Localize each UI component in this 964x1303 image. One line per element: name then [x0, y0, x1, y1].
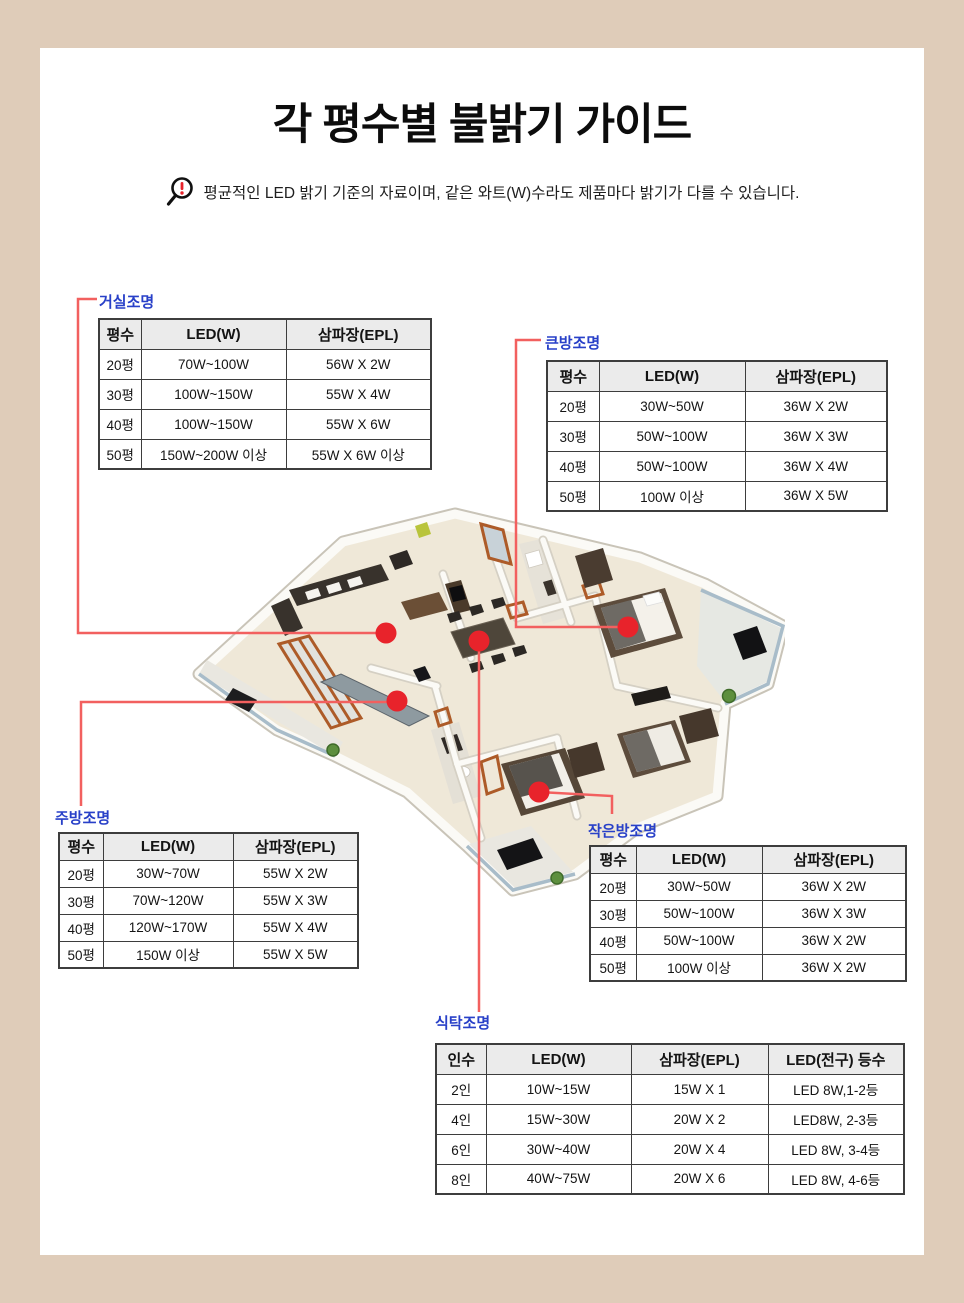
table-cell: 10W~15W — [486, 1074, 631, 1104]
table-cell: 30평 — [590, 900, 636, 927]
table-header-row: 평수LED(W)삼파장(EPL) — [590, 846, 906, 873]
table-cell: 30평 — [547, 421, 599, 451]
table-row: 40평50W~100W36W X 4W — [547, 451, 887, 481]
table-cell: 50W~100W — [636, 927, 762, 954]
table-row: 20평30W~50W36W X 2W — [590, 873, 906, 900]
column-header: 삼파장(EPL) — [745, 361, 887, 391]
table-cell: 55W X 6W — [286, 409, 431, 439]
table-cell: LED 8W, 4-6등 — [768, 1164, 904, 1194]
column-header: LED(전구) 등수 — [768, 1044, 904, 1074]
notice-line: 평균적인 LED 밝기 기준의 자료이며, 같은 와트(W)수라도 제품마다 밝… — [0, 176, 964, 208]
label-small-room-lighting: 작은방조명 — [588, 820, 657, 841]
table-row: 8인40W~75W20W X 6LED 8W, 4-6등 — [436, 1164, 904, 1194]
table-cell: LED 8W,1-2등 — [768, 1074, 904, 1104]
column-header: LED(W) — [599, 361, 745, 391]
table-cell: 2인 — [436, 1074, 486, 1104]
table-cell: 55W X 3W — [233, 887, 358, 914]
table-cell: 20평 — [547, 391, 599, 421]
table-cell: 50W~100W — [636, 900, 762, 927]
table-cell: 36W X 2W — [762, 954, 906, 981]
table-cell: 55W X 2W — [233, 860, 358, 887]
table-cell: 30평 — [59, 887, 103, 914]
column-header: LED(W) — [141, 319, 286, 349]
table-cell: 55W X 6W 이상 — [286, 439, 431, 469]
column-header: 삼파장(EPL) — [631, 1044, 768, 1074]
notice-text: 평균적인 LED 밝기 기준의 자료이며, 같은 와트(W)수라도 제품마다 밝… — [204, 181, 800, 203]
table-cell: 20W X 6 — [631, 1164, 768, 1194]
table-cell: 36W X 2W — [762, 927, 906, 954]
table-cell: 50W~100W — [599, 451, 745, 481]
column-header: LED(W) — [636, 846, 762, 873]
table-cell: 150W~200W 이상 — [141, 439, 286, 469]
table-row: 30평100W~150W55W X 4W — [99, 379, 431, 409]
table-row: 20평30W~50W36W X 2W — [547, 391, 887, 421]
table-row: 40평120W~170W55W X 4W — [59, 914, 358, 941]
table-row: 40평100W~150W55W X 6W — [99, 409, 431, 439]
table-cell: 55W X 4W — [233, 914, 358, 941]
table-cell: 36W X 2W — [762, 873, 906, 900]
table-cell: 40W~75W — [486, 1164, 631, 1194]
table-cell: 50평 — [547, 481, 599, 511]
small-room-table: 평수LED(W)삼파장(EPL)20평30W~50W36W X 2W30평50W… — [589, 845, 907, 982]
column-header: 평수 — [99, 319, 141, 349]
table-cell: 20평 — [99, 349, 141, 379]
column-header: 평수 — [590, 846, 636, 873]
table-cell: 6인 — [436, 1134, 486, 1164]
table-cell: LED8W, 2-3등 — [768, 1104, 904, 1134]
table-cell: 36W X 3W — [745, 421, 887, 451]
magnifier-exclamation-icon — [165, 176, 195, 208]
label-dining-lighting: 식탁조명 — [435, 1012, 490, 1033]
table-cell: 55W X 4W — [286, 379, 431, 409]
table-cell: 50평 — [590, 954, 636, 981]
table-row: 40평50W~100W36W X 2W — [590, 927, 906, 954]
table-cell: 30평 — [99, 379, 141, 409]
table-header-row: 평수LED(W)삼파장(EPL) — [547, 361, 887, 391]
table-row: 6인30W~40W20W X 4LED 8W, 3-4등 — [436, 1134, 904, 1164]
table-cell: 70W~120W — [103, 887, 233, 914]
table-cell: 40평 — [590, 927, 636, 954]
table-row: 30평70W~120W55W X 3W — [59, 887, 358, 914]
table-cell: 36W X 4W — [745, 451, 887, 481]
table-cell: 30W~70W — [103, 860, 233, 887]
table-cell: 100W 이상 — [636, 954, 762, 981]
label-living-room-lighting: 거실조명 — [99, 291, 154, 312]
table-cell: 30W~40W — [486, 1134, 631, 1164]
table-cell: 40평 — [99, 409, 141, 439]
kitchen-table: 평수LED(W)삼파장(EPL)20평30W~70W55W X 2W30평70W… — [58, 832, 359, 969]
table-cell: 20평 — [590, 873, 636, 900]
table-row: 2인10W~15W15W X 1LED 8W,1-2등 — [436, 1074, 904, 1104]
label-kitchen-lighting: 주방조명 — [55, 807, 110, 828]
table-cell: 20평 — [59, 860, 103, 887]
table-row: 50평150W 이상55W X 5W — [59, 941, 358, 968]
table-row: 4인15W~30W20W X 2LED8W, 2-3등 — [436, 1104, 904, 1134]
table-row: 50평100W 이상36W X 5W — [547, 481, 887, 511]
master-room-table: 평수LED(W)삼파장(EPL)20평30W~50W36W X 2W30평50W… — [546, 360, 888, 512]
table-header-row: 평수LED(W)삼파장(EPL) — [99, 319, 431, 349]
table-row: 30평50W~100W36W X 3W — [547, 421, 887, 451]
table-cell: 4인 — [436, 1104, 486, 1134]
table-cell: 30W~50W — [636, 873, 762, 900]
table-cell: 50평 — [99, 439, 141, 469]
table-cell: 56W X 2W — [286, 349, 431, 379]
table-row: 20평30W~70W55W X 2W — [59, 860, 358, 887]
table-cell: 120W~170W — [103, 914, 233, 941]
table-cell: 36W X 5W — [745, 481, 887, 511]
table-cell: 70W~100W — [141, 349, 286, 379]
table-cell: 150W 이상 — [103, 941, 233, 968]
column-header: LED(W) — [103, 833, 233, 860]
table-cell: 50평 — [59, 941, 103, 968]
table-cell: 36W X 3W — [762, 900, 906, 927]
table-cell: 15W~30W — [486, 1104, 631, 1134]
table-header-row: 인수LED(W)삼파장(EPL)LED(전구) 등수 — [436, 1044, 904, 1074]
table-row: 20평70W~100W56W X 2W — [99, 349, 431, 379]
table-cell: 100W 이상 — [599, 481, 745, 511]
table-header-row: 평수LED(W)삼파장(EPL) — [59, 833, 358, 860]
table-cell: 30W~50W — [599, 391, 745, 421]
table-row: 50평150W~200W 이상55W X 6W 이상 — [99, 439, 431, 469]
table-cell: 50W~100W — [599, 421, 745, 451]
table-cell: 15W X 1 — [631, 1074, 768, 1104]
table-row: 30평50W~100W36W X 3W — [590, 900, 906, 927]
column-header: 삼파장(EPL) — [762, 846, 906, 873]
table-cell: LED 8W, 3-4등 — [768, 1134, 904, 1164]
page-title: 각 평수별 불밝기 가이드 — [0, 90, 964, 152]
column-header: 삼파장(EPL) — [233, 833, 358, 860]
column-header: 평수 — [59, 833, 103, 860]
table-row: 50평100W 이상36W X 2W — [590, 954, 906, 981]
column-header: 평수 — [547, 361, 599, 391]
dining-table-table: 인수LED(W)삼파장(EPL)LED(전구) 등수2인10W~15W15W X… — [435, 1043, 905, 1195]
table-cell: 8인 — [436, 1164, 486, 1194]
column-header: LED(W) — [486, 1044, 631, 1074]
table-cell: 40평 — [547, 451, 599, 481]
table-cell: 55W X 5W — [233, 941, 358, 968]
living-room-table: 평수LED(W)삼파장(EPL)20평70W~100W56W X 2W30평10… — [98, 318, 432, 470]
column-header: 인수 — [436, 1044, 486, 1074]
table-cell: 100W~150W — [141, 379, 286, 409]
label-master-room-lighting: 큰방조명 — [545, 332, 600, 353]
column-header: 삼파장(EPL) — [286, 319, 431, 349]
table-cell: 40평 — [59, 914, 103, 941]
guide-page: 각 평수별 불밝기 가이드 평균적인 LED 밝기 기준의 자료이며, 같은 와… — [0, 0, 964, 1303]
table-cell: 20W X 4 — [631, 1134, 768, 1164]
table-cell: 100W~150W — [141, 409, 286, 439]
table-cell: 20W X 2 — [631, 1104, 768, 1134]
table-cell: 36W X 2W — [745, 391, 887, 421]
